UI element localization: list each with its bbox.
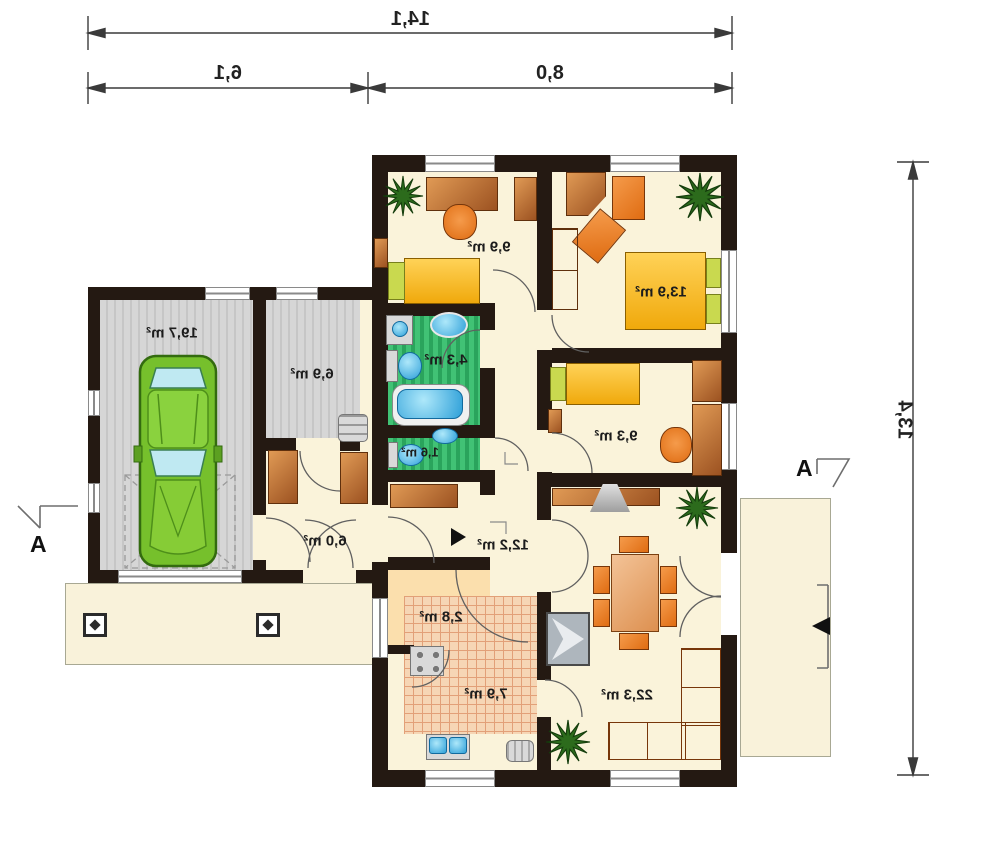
- sink: [432, 428, 458, 444]
- water-heater: [506, 740, 534, 762]
- garage-door: [118, 570, 242, 583]
- section-marker-left: A: [30, 531, 47, 558]
- dining-chair: [660, 566, 677, 594]
- dimension-left-segment: 6,1: [178, 62, 278, 85]
- room-label-living-room: 22,3 m²: [601, 687, 653, 704]
- wall-segment: [721, 470, 737, 553]
- wall-segment: [480, 303, 495, 330]
- office-chair: [660, 427, 692, 463]
- wall-segment: [537, 667, 551, 680]
- window: [372, 598, 388, 658]
- armchair: [612, 176, 645, 220]
- pillow: [550, 367, 566, 401]
- desk: [692, 404, 722, 476]
- dimension-right-segment: 8,0: [500, 62, 600, 85]
- window: [205, 287, 250, 300]
- room-label-utility: 6,9 m²: [290, 366, 333, 383]
- office-chair: [443, 204, 477, 240]
- rear-terrace: [740, 498, 831, 757]
- window: [425, 155, 495, 172]
- room-label-bedroom-right: 9,3 m²: [594, 428, 637, 445]
- pillow: [706, 258, 721, 288]
- wardrobe: [514, 177, 537, 221]
- dining-chair: [593, 599, 610, 627]
- wall-segment: [480, 470, 495, 495]
- wall-segment: [480, 368, 495, 438]
- dimension-total-width: 14,1: [360, 8, 460, 31]
- window: [276, 287, 318, 300]
- room-label-bathroom: 4,3 m²: [424, 352, 467, 369]
- hall-passage-opening: [372, 505, 388, 562]
- wall-segment: [388, 470, 480, 482]
- pillow: [706, 294, 721, 324]
- window: [721, 250, 737, 333]
- sink: [430, 312, 468, 338]
- toilet-tank: [386, 350, 398, 382]
- front-porch: [65, 583, 374, 665]
- dining-chair: [619, 633, 649, 650]
- wall-segment: [372, 562, 388, 598]
- porch-pillar: [83, 613, 107, 637]
- wall-segment: [537, 717, 551, 770]
- bathtub-basin: [397, 389, 463, 419]
- room-label-bedroom-top-left: 9,9 m²: [467, 239, 510, 256]
- room-label-garage: 19,7 m²: [146, 325, 198, 342]
- corner-sofa: [608, 722, 721, 760]
- room-label-kitchen: 7,9 m²: [464, 686, 507, 703]
- window: [721, 403, 737, 470]
- washing-machine-door: [392, 321, 408, 337]
- wall-segment: [388, 557, 490, 570]
- wall-segment: [372, 448, 388, 505]
- toilet: [398, 352, 422, 380]
- wardrobe: [340, 452, 368, 504]
- wardrobe: [268, 450, 298, 504]
- wall-segment: [721, 333, 737, 403]
- entrance-opening: [303, 570, 356, 583]
- section-marker-right: A: [796, 455, 813, 482]
- room-label-entry-hall: 6,0 m²: [303, 533, 346, 550]
- wall-segment: [721, 635, 737, 770]
- kitchen-sink: [429, 737, 447, 754]
- sideboard: [390, 484, 458, 508]
- wall-segment: [253, 300, 266, 515]
- wall-segment: [372, 658, 388, 770]
- kitchen-sink: [449, 737, 467, 754]
- boiler: [338, 414, 368, 442]
- stove: [410, 646, 444, 676]
- room-label-pantry: 2,8 m²: [419, 609, 462, 626]
- bed: [404, 258, 480, 304]
- wall-segment: [721, 172, 737, 250]
- dining-chair: [619, 536, 649, 553]
- porch-pillar: [256, 613, 280, 637]
- wardrobe: [552, 228, 578, 310]
- window: [425, 770, 495, 787]
- window: [88, 483, 100, 513]
- window: [88, 390, 100, 416]
- wall-segment: [537, 487, 551, 520]
- nightstand: [548, 409, 562, 433]
- wall-segment: [537, 172, 552, 310]
- wall-segment: [88, 287, 100, 583]
- dining-chair: [593, 566, 610, 594]
- pillow: [388, 262, 405, 300]
- toilet-tank: [388, 442, 398, 468]
- window: [610, 155, 680, 172]
- dining-chair: [660, 599, 677, 627]
- dining-table: [611, 554, 659, 632]
- room-label-bedroom-top-right: 13,9 m²: [635, 284, 687, 301]
- terrace-door-opening: [721, 553, 737, 635]
- room-label-wc: 1,6 m²: [401, 445, 439, 460]
- room-label-corridor: 12,2 m²: [477, 537, 529, 554]
- dimension-side-height: 13,4: [878, 392, 930, 448]
- floor-plan: 14,1 6,1 8,0 13,4 A A 19,7 m² 6,9 m² 9,9…: [0, 0, 1000, 845]
- window: [610, 770, 680, 787]
- wall-segment: [372, 172, 388, 287]
- wall-segment: [253, 560, 266, 570]
- wardrobe: [692, 360, 722, 402]
- bed: [566, 363, 640, 405]
- shelf: [374, 238, 388, 268]
